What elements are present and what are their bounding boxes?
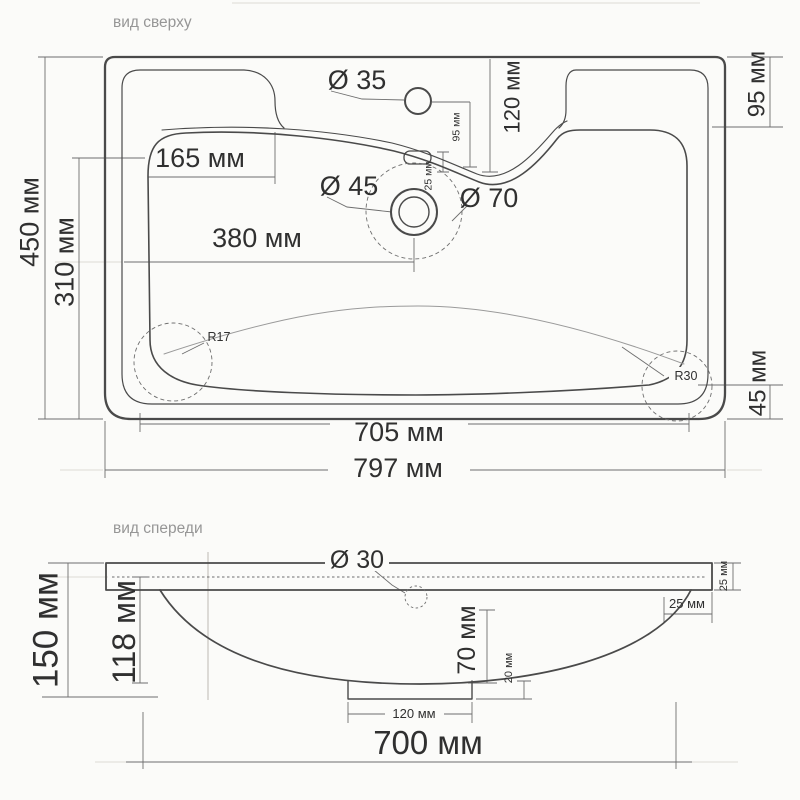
dim-r30-label: R30 (675, 369, 698, 383)
sink-inner-deck-outline (122, 70, 708, 404)
drain-inner-circle (399, 197, 429, 227)
dim-dia30-label: Ø 30 (330, 546, 384, 574)
top-view-drawing: вид сверху Ø 35 Ø 45 Ø 70 165 мм 380 мм … (14, 3, 783, 483)
dim-150-label: 150 мм (26, 572, 65, 688)
dim-797-label: 797 мм (353, 453, 443, 483)
dim-25-overhang-label: 25 мм (669, 596, 705, 611)
front-view-drawing: вид спереди Ø 30 150 мм 118 мм 70 мм 20 … (26, 520, 741, 769)
dim-25-slab-label: 25 мм (718, 561, 730, 591)
dim-450-label: 450 мм (14, 177, 44, 267)
front-view-title: вид спереди (113, 520, 203, 537)
dim-380-label: 380 мм (212, 223, 302, 253)
drain-outer-circle (391, 189, 437, 235)
dim-45-right-label: 45 мм (744, 350, 771, 416)
faucet-hole (405, 88, 431, 114)
dim-165-label: 165 мм (155, 143, 245, 173)
top-view-title: вид сверху (113, 14, 192, 31)
dim-dia45-label: Ø 45 (320, 171, 379, 201)
dim-705-label: 705 мм (354, 417, 444, 447)
dim-dia70-label: Ø 70 (460, 183, 519, 213)
dim-95-right-label: 95 мм (743, 51, 770, 117)
sink-outer-outline (105, 57, 725, 419)
dim-25-small-label: 25 мм (423, 161, 435, 190)
dim-70-front-label: 70 мм (453, 605, 481, 674)
dim-700-label: 700 мм (373, 724, 483, 761)
corner-radius-r17-circle (134, 323, 212, 401)
dim-20-front-label: 20 мм (503, 653, 515, 683)
scan-artifact-lines (55, 3, 762, 470)
countertop-slab (106, 563, 712, 590)
sink-technical-drawing: вид сверху Ø 35 Ø 45 Ø 70 165 мм 380 мм … (0, 0, 800, 800)
dim-r17-label: R17 (208, 330, 231, 344)
dim-120-boss-label: 120 мм (392, 706, 435, 721)
dim-95-small-label: 95 мм (451, 112, 463, 141)
dim-dia35-label: Ø 35 (328, 65, 387, 95)
bowl-outline (160, 590, 691, 684)
dim-120-vertical-label: 120 мм (500, 60, 525, 133)
dim-118-label: 118 мм (106, 580, 142, 684)
basin-bottom-contour-line (164, 306, 684, 364)
dim-310-label: 310 мм (49, 217, 79, 307)
